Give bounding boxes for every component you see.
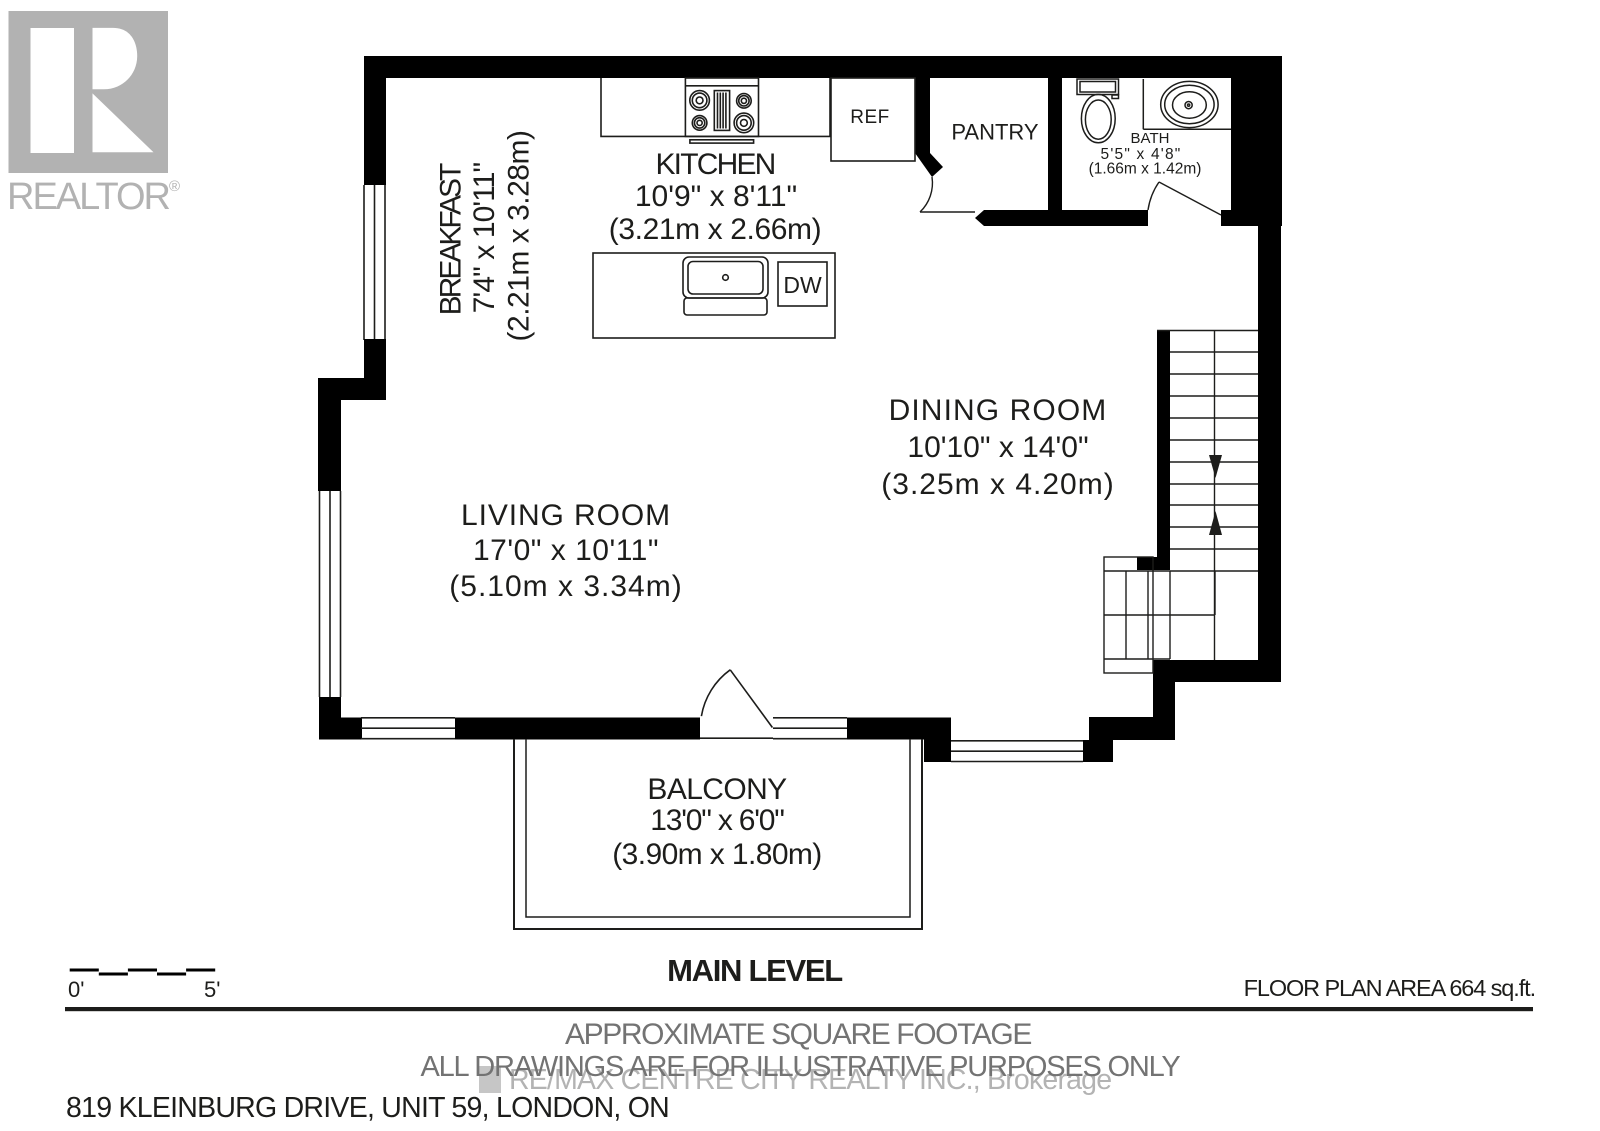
svg-text:819 KLEINBURG DRIVE, UNIT 59,: 819 KLEINBURG DRIVE, UNIT 59, LONDON, ON (66, 1092, 669, 1124)
svg-text:7'4" x 10'11": 7'4" x 10'11" (468, 162, 501, 313)
svg-text:BATH: BATH (1131, 130, 1170, 147)
svg-text:PANTRY: PANTRY (951, 120, 1039, 145)
svg-text:DW: DW (783, 272, 822, 298)
svg-text:APPROXIMATE SQUARE FOOTAGE: APPROXIMATE SQUARE FOOTAGE (565, 1018, 1031, 1051)
svg-text:MAIN LEVEL: MAIN LEVEL (667, 953, 842, 988)
svg-text:(1.66m x 1.42m): (1.66m x 1.42m) (1089, 161, 1202, 178)
svg-text:LIVING ROOM: LIVING ROOM (461, 499, 671, 532)
svg-text:10'10" x 14'0": 10'10" x 14'0" (907, 431, 1088, 464)
svg-text:5': 5' (204, 977, 220, 1002)
svg-text:(3.25m x 4.20m): (3.25m x 4.20m) (881, 468, 1114, 501)
svg-text:DINING ROOM: DINING ROOM (889, 394, 1108, 427)
svg-text:(3.21m x 2.66m): (3.21m x 2.66m) (609, 213, 821, 246)
svg-text:BREAKFAST: BREAKFAST (435, 163, 468, 315)
svg-text:(3.90m x 1.80m): (3.90m x 1.80m) (612, 838, 821, 871)
svg-text:®: ® (169, 178, 180, 195)
svg-text:0': 0' (68, 977, 84, 1002)
svg-text:FLOOR PLAN AREA 664 sq.ft.: FLOOR PLAN AREA 664 sq.ft. (1244, 975, 1535, 1001)
svg-text:REF: REF (850, 107, 890, 128)
svg-text:10'9" x 8'11": 10'9" x 8'11" (635, 180, 797, 213)
svg-text:ALL DRAWINGS ARE FOR ILLUSTRAT: ALL DRAWINGS ARE FOR ILLUSTRATIVE PURPOS… (420, 1051, 1180, 1083)
svg-text:REALTOR: REALTOR (7, 176, 170, 218)
svg-text:(5.10m x 3.34m): (5.10m x 3.34m) (449, 570, 682, 603)
svg-text:13'0" x 6'0": 13'0" x 6'0" (650, 804, 784, 837)
svg-text:(2.21m x 3.28m): (2.21m x 3.28m) (503, 131, 536, 342)
svg-text:17'0" x 10'11": 17'0" x 10'11" (473, 534, 659, 567)
svg-text:BALCONY: BALCONY (647, 773, 787, 806)
svg-text:KITCHEN: KITCHEN (655, 148, 774, 181)
